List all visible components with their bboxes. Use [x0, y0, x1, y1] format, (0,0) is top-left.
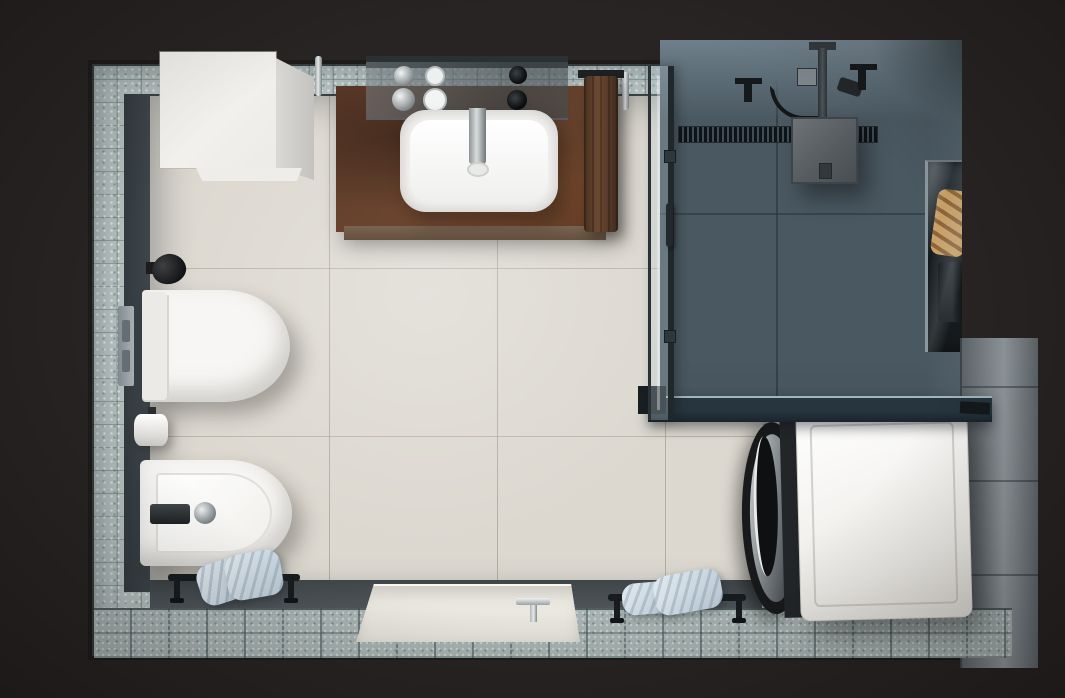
- tray-drain-stem: [530, 605, 537, 622]
- rail-foot: [732, 618, 746, 623]
- basin-drain: [467, 162, 489, 177]
- rail-leg: [736, 600, 742, 619]
- glass-band-right-bracket: [960, 401, 991, 415]
- white-tumbler-icon: [425, 66, 445, 86]
- flush-plate: [118, 306, 134, 386]
- storage-cabinet: [160, 52, 276, 168]
- rain-shower-head: [791, 117, 858, 184]
- shower-head-core: [819, 163, 832, 179]
- cabinet-side-face: [276, 58, 314, 180]
- chrome-tumbler-icon: [394, 66, 414, 86]
- rail-leg: [174, 580, 180, 599]
- shower-door-handle: [666, 203, 673, 247]
- washing-machine: [739, 407, 972, 625]
- shower-arm: [818, 48, 827, 126]
- soap-bottle-reflection: [507, 90, 527, 110]
- washer-lid-outline: [810, 421, 959, 607]
- flush-button-bottom: [122, 350, 130, 372]
- rail-foot: [610, 618, 624, 623]
- toilet-seat-hinge-side: [142, 292, 167, 400]
- washer-body: [795, 407, 972, 621]
- background-top-right: [962, 0, 1065, 338]
- rail-foot: [170, 598, 184, 603]
- hand-towel-brown: [584, 76, 618, 232]
- toilet-lid-seam: [167, 295, 169, 397]
- glass-hinge-top: [664, 150, 676, 163]
- bidet-faucet-handle: [150, 504, 190, 524]
- white-tumbler-reflection: [423, 88, 447, 112]
- chrome-tumbler-reflection: [392, 88, 415, 111]
- glass-reflection: [657, 76, 660, 410]
- cabinet-base-ledge: [196, 168, 302, 181]
- bathroom-render: [0, 0, 1065, 698]
- glass-shelf-band: [648, 396, 992, 422]
- ceiling-junction-box: [797, 68, 817, 86]
- bidet-faucet-spout: [194, 502, 216, 524]
- tray-drain-handle: [516, 598, 550, 605]
- toilet-paper-roll: [134, 414, 168, 446]
- hand-shower-bracket-stem: [858, 70, 866, 90]
- vanity-plinth: [344, 226, 606, 240]
- flush-button-top: [122, 320, 130, 342]
- rail-foot: [284, 598, 298, 603]
- glass-hinge-bottom: [664, 330, 676, 343]
- shower-valve-stem: [744, 84, 752, 102]
- basin-faucet: [469, 108, 486, 164]
- rail-leg: [614, 600, 620, 619]
- rail-leg: [288, 580, 294, 599]
- wall-hung-toilet: [142, 290, 290, 402]
- towel-hook-left: [315, 56, 322, 96]
- shower-tray: [356, 584, 580, 642]
- soap-bottle-icon: [509, 66, 527, 84]
